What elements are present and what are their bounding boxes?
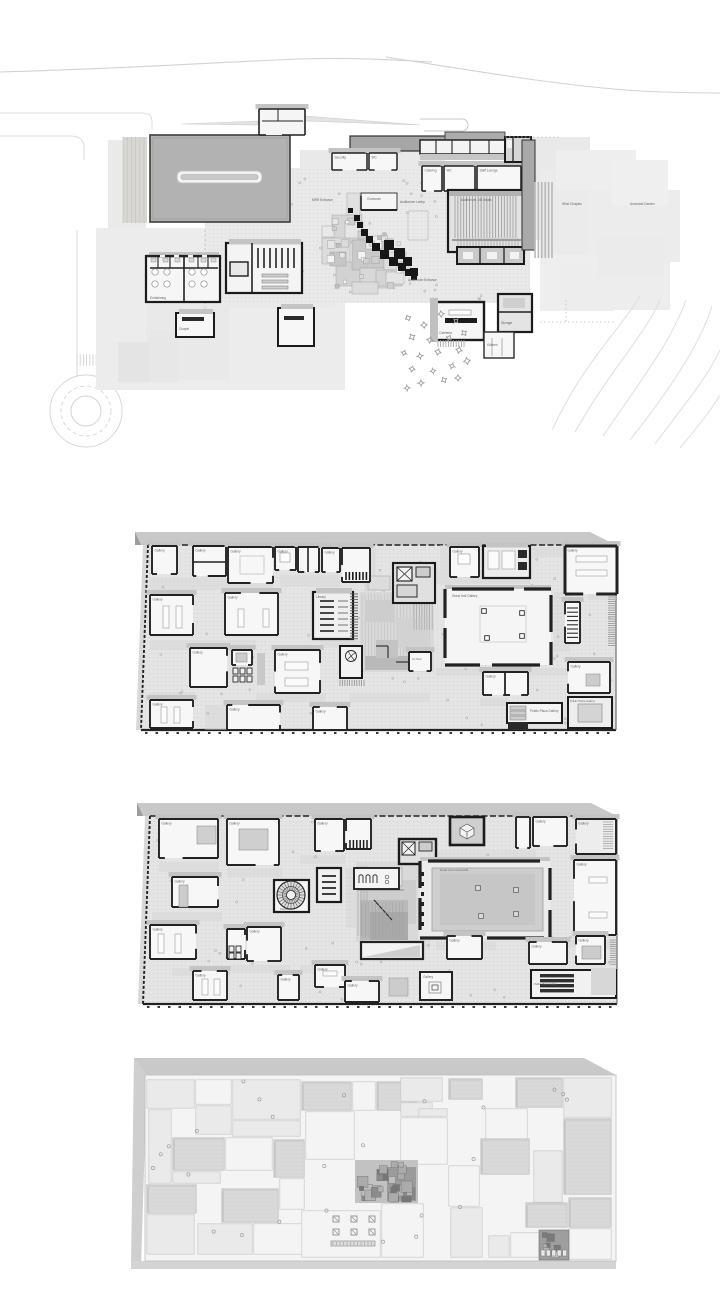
svg-text:Chapel: Chapel [179, 327, 189, 331]
svg-text:Public Plaza Gallery: Public Plaza Gallery [534, 982, 558, 986]
svg-text:Kitchen: Kitchen [487, 343, 498, 347]
svg-text:Storage: Storage [501, 321, 512, 325]
svg-text:Wind Chapels: Wind Chapels [562, 202, 582, 206]
svg-text:Gallery: Gallery [175, 880, 186, 884]
svg-text:Gallery: Gallery [193, 651, 204, 655]
svg-text:Gallery: Gallery [153, 703, 164, 707]
svg-text:Gallery: Gallery [316, 710, 327, 714]
svg-text:Public Plaza Gallery: Public Plaza Gallery [530, 709, 559, 713]
svg-text:Gallery: Gallery [325, 551, 336, 555]
svg-text:Public Plaza Gallery: Public Plaza Gallery [570, 699, 596, 703]
svg-text:Gallery: Gallery [230, 822, 241, 826]
svg-text:Chatroom: Chatroom [367, 197, 381, 201]
svg-text:Gallery: Gallery [450, 939, 461, 943]
svg-text:Art Stud: Art Stud [412, 657, 422, 661]
svg-text:Gallery: Gallery [536, 820, 547, 824]
svg-text:Gallery: Gallery [250, 930, 261, 934]
svg-text:Auditorium 145 Seats: Auditorium 145 Seats [461, 198, 492, 202]
svg-text:Library: Library [316, 595, 326, 599]
svg-text:Gallery: Gallery [568, 549, 579, 553]
svg-text:Planetarium: Planetarium [280, 907, 294, 911]
svg-text:Gallery: Gallery [571, 665, 582, 669]
svg-text:Auditorium Entrance: Auditorium Entrance [408, 278, 437, 282]
svg-text:Gallery: Gallery [318, 822, 329, 826]
svg-text:Great Court Great Hall: Great Court Great Hall [440, 868, 468, 872]
svg-text:Gallery: Gallery [228, 596, 239, 600]
svg-text:Gallery: Gallery [278, 653, 289, 657]
svg-text:Gallery: Gallery [153, 928, 164, 932]
svg-text:Great Hall Gallery: Great Hall Gallery [452, 594, 478, 598]
svg-text:Auditorium Lobby: Auditorium Lobby [400, 200, 425, 204]
svg-text:Gallery: Gallery [577, 863, 588, 867]
svg-text:Embalming: Embalming [150, 296, 166, 300]
svg-text:Cafeteria: Cafeteria [439, 331, 452, 335]
svg-text:Gallery: Gallery [579, 939, 590, 943]
svg-text:Gallery: Gallery [453, 550, 464, 554]
svg-text:Gallery: Gallery [196, 549, 207, 553]
svg-text:Gallery: Gallery [579, 822, 590, 826]
svg-text:Gallery: Gallery [281, 978, 292, 982]
svg-text:Security: Security [335, 156, 347, 160]
svg-text:MRR Entrance: MRR Entrance [312, 198, 333, 202]
svg-text:Gallery: Gallery [486, 675, 497, 679]
svg-text:Staff Lounge: Staff Lounge [480, 169, 498, 173]
svg-text:Gallery: Gallery [231, 550, 242, 554]
svg-text:Gallery: Gallery [348, 984, 359, 988]
svg-text:Ancestral Garden: Ancestral Garden [630, 202, 655, 206]
svg-text:Catering: Catering [425, 169, 437, 173]
svg-text:Gallery: Gallery [153, 598, 164, 602]
svg-text:WC: WC [372, 156, 378, 160]
svg-text:Gallery: Gallery [532, 945, 543, 949]
svg-text:Gallery: Gallery [162, 822, 173, 826]
svg-text:WC: WC [447, 169, 453, 173]
svg-text:Gallery: Gallery [230, 708, 241, 712]
svg-text:Gallery: Gallery [196, 974, 207, 978]
svg-text:Gallery: Gallery [423, 975, 434, 979]
svg-text:Gallery: Gallery [155, 549, 166, 553]
